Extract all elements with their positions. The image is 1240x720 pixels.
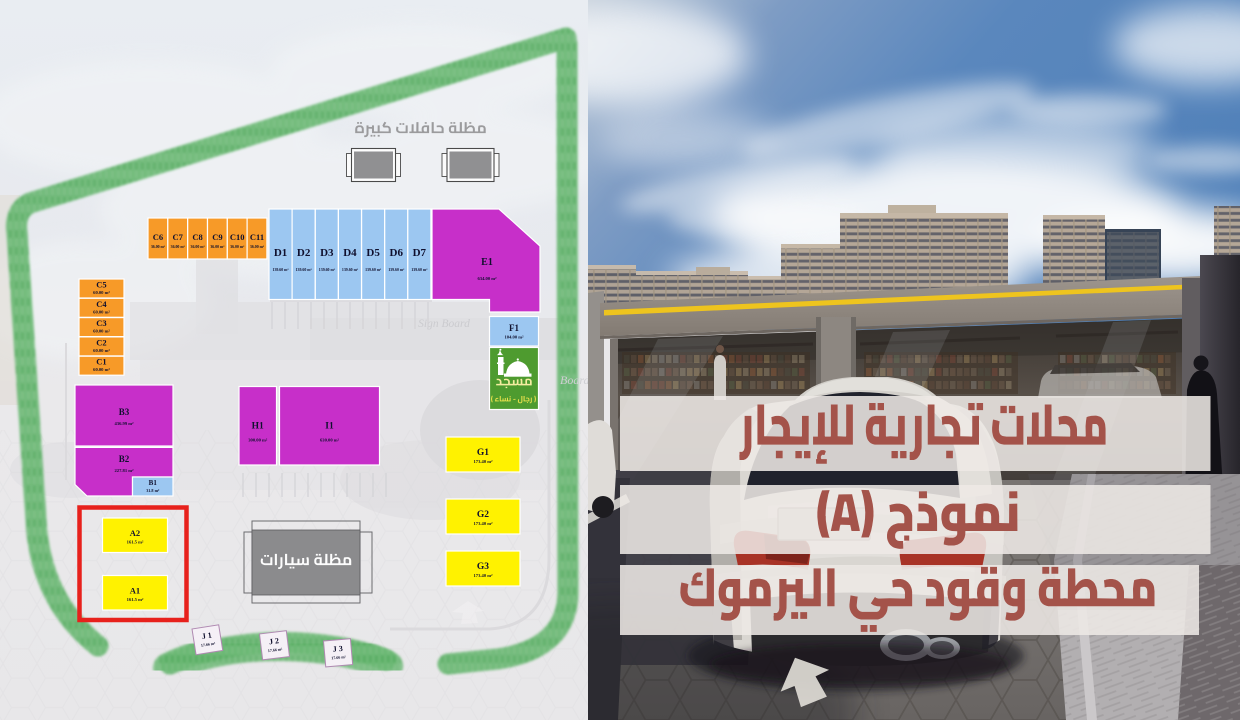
svg-text:60.00 m²: 60.00 m² <box>93 367 110 372</box>
svg-text:A1: A1 <box>130 586 140 596</box>
svg-text:436.99 m²: 436.99 m² <box>115 421 135 426</box>
svg-text:C5: C5 <box>96 280 106 290</box>
svg-text:300.00 m²: 300.00 m² <box>248 438 268 443</box>
svg-text:139.60 m²: 139.60 m² <box>411 268 428 272</box>
svg-text:173.40 m²: 173.40 m² <box>474 521 494 526</box>
svg-text:C3: C3 <box>96 318 106 328</box>
svg-text:139.60 m²: 139.60 m² <box>365 268 382 272</box>
svg-text:C7: C7 <box>173 232 184 242</box>
svg-text:31.8 m²: 31.8 m² <box>146 488 160 493</box>
svg-text:104.00 m²: 104.00 m² <box>505 335 525 340</box>
svg-text:161.5 m²: 161.5 m² <box>127 540 144 545</box>
svg-text:H1: H1 <box>252 422 264 432</box>
svg-text:C2: C2 <box>96 337 106 347</box>
svg-text:60.00 m²: 60.00 m² <box>93 290 110 295</box>
svg-text:B1: B1 <box>149 479 158 487</box>
svg-text:D2: D2 <box>297 247 311 259</box>
svg-text:36.00 m²: 36.00 m² <box>210 245 225 249</box>
svg-text:D3: D3 <box>320 247 334 259</box>
svg-text:139.60 m²: 139.60 m² <box>273 268 290 272</box>
svg-text:60.00 m²: 60.00 m² <box>93 348 110 353</box>
svg-text:60.00 m²: 60.00 m² <box>93 309 110 314</box>
svg-text:C8: C8 <box>192 232 202 242</box>
svg-text:C11: C11 <box>250 232 264 242</box>
svg-text:227.81 m²: 227.81 m² <box>115 468 135 473</box>
svg-text:C10: C10 <box>230 232 245 242</box>
svg-text:139.60 m²: 139.60 m² <box>388 268 405 272</box>
svg-text:Sign Board: Sign Board <box>418 318 470 330</box>
svg-text:D1: D1 <box>274 247 287 259</box>
svg-text:173.40 m²: 173.40 m² <box>474 459 494 464</box>
svg-text:D4: D4 <box>343 247 357 259</box>
svg-text:634.00 m²: 634.00 m² <box>478 276 498 281</box>
svg-text:G1: G1 <box>477 448 489 458</box>
svg-text:G2: G2 <box>477 510 489 520</box>
svg-text:C9: C9 <box>212 232 222 242</box>
svg-text:161.5 m²: 161.5 m² <box>127 597 144 602</box>
svg-text:36.00 m²: 36.00 m² <box>191 245 206 249</box>
svg-text:630.00 m²: 630.00 m² <box>320 438 340 443</box>
svg-text:D7: D7 <box>413 247 427 259</box>
svg-text:Board: Board <box>560 373 588 387</box>
svg-text:60.00 m²: 60.00 m² <box>93 329 110 334</box>
svg-text:36.00 m²: 36.00 m² <box>151 245 166 249</box>
svg-text:139.60 m²: 139.60 m² <box>296 268 313 272</box>
svg-text:36.00 m²: 36.00 m² <box>250 245 265 249</box>
svg-text:J 3: J 3 <box>332 644 343 654</box>
svg-text:36.00 m²: 36.00 m² <box>171 245 186 249</box>
svg-text:B2: B2 <box>119 454 130 464</box>
svg-text:D6: D6 <box>390 247 404 259</box>
svg-text:A2: A2 <box>130 528 140 538</box>
svg-text:139.60 m²: 139.60 m² <box>319 268 336 272</box>
svg-text:C6: C6 <box>153 232 163 242</box>
svg-text:I1: I1 <box>325 422 334 432</box>
svg-text:J 1: J 1 <box>201 631 212 641</box>
svg-text:B3: B3 <box>119 407 130 417</box>
svg-text:173.40 m²: 173.40 m² <box>474 573 494 578</box>
svg-text:C1: C1 <box>96 357 106 367</box>
svg-text:F1: F1 <box>509 323 519 333</box>
svg-text:J 2: J 2 <box>268 636 279 646</box>
svg-text:G3: G3 <box>477 562 489 572</box>
svg-text:D5: D5 <box>366 247 380 259</box>
svg-text:139.60 m²: 139.60 m² <box>342 268 359 272</box>
svg-text:36.00 m²: 36.00 m² <box>230 245 245 249</box>
svg-text:C4: C4 <box>96 299 107 309</box>
svg-text:E1: E1 <box>481 257 493 268</box>
